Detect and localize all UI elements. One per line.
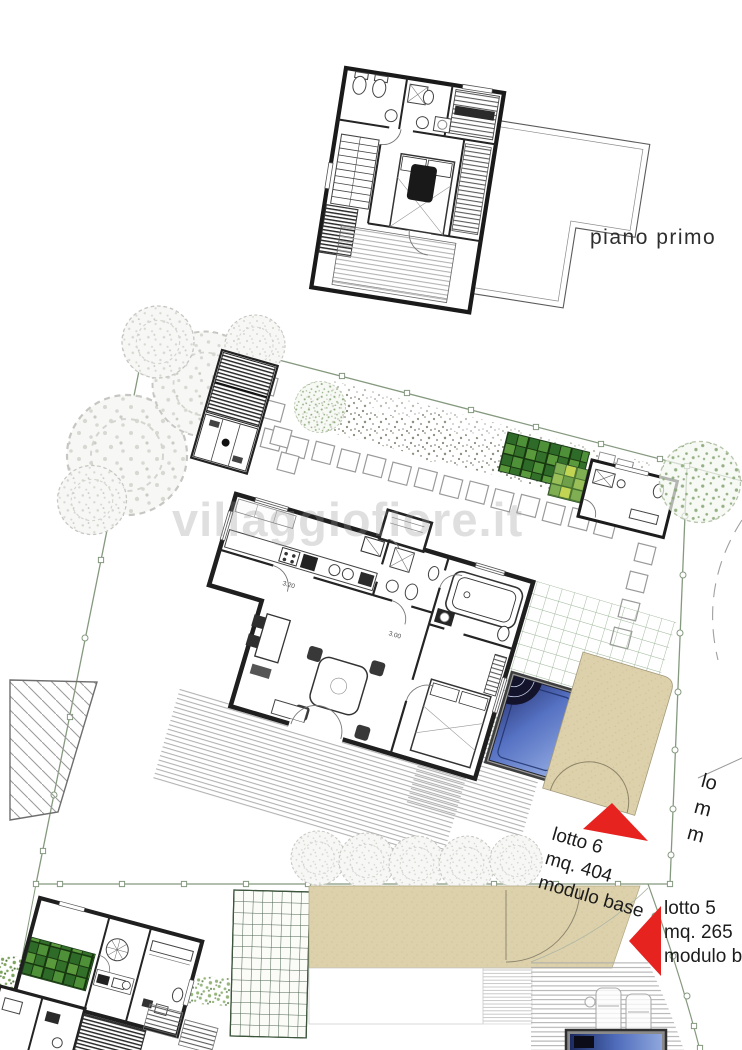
leader-line (698, 758, 742, 778)
patio-white-band (309, 968, 483, 1024)
site-plan-drawing: 3.00 3.20 (0, 0, 742, 1050)
architectural-site-plan: 3.00 3.20 (0, 0, 742, 1050)
farm-grid (230, 890, 310, 1038)
road-edge-dashed (713, 520, 742, 660)
first-floor-plan (309, 66, 654, 336)
deck-fine (483, 968, 532, 1024)
patio-lot5 (309, 886, 640, 968)
pool-lot5 (566, 1030, 666, 1050)
tree-row (291, 831, 542, 892)
ff-bed (390, 154, 455, 236)
lotto-6-arrow-icon (583, 803, 648, 841)
green-tree-small (295, 382, 346, 433)
ff-closet (449, 89, 499, 139)
road-hatch (10, 680, 97, 820)
green-tree-right (660, 442, 741, 523)
